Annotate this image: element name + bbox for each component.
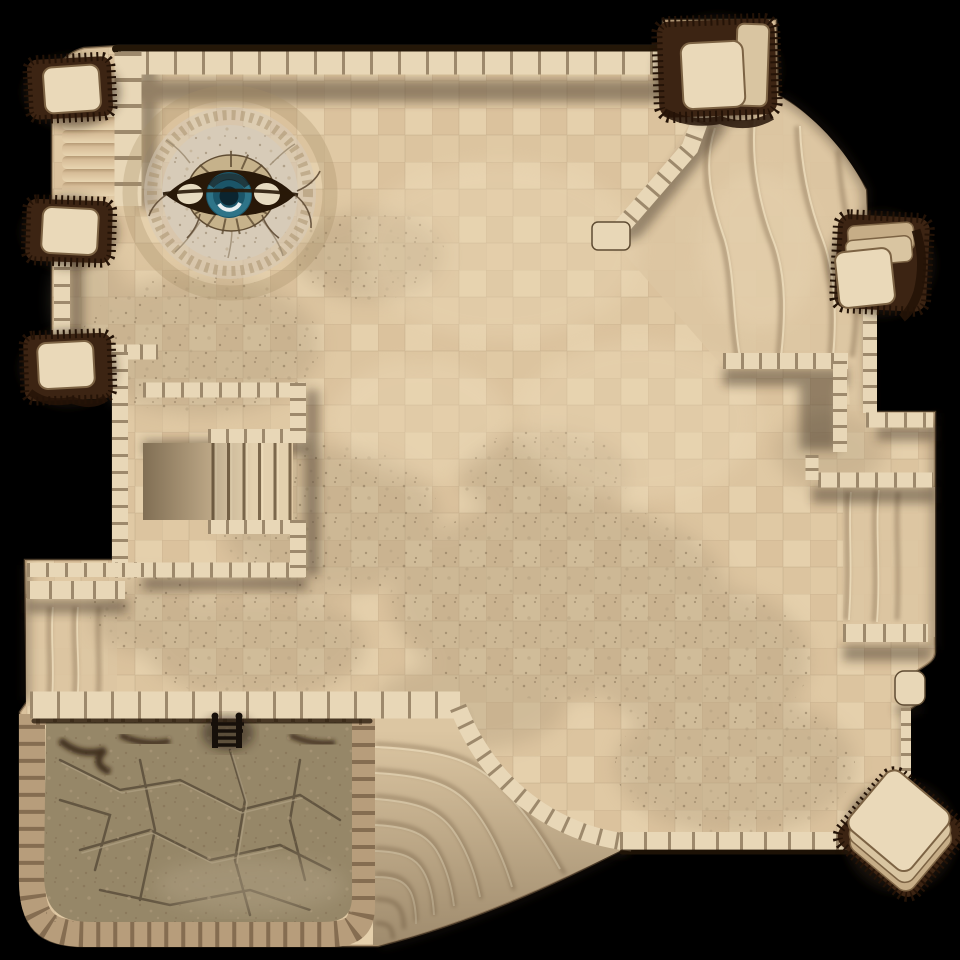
stair-tread <box>62 156 118 169</box>
battle-map <box>0 0 960 960</box>
stair-tread <box>62 182 118 196</box>
sand-alcove-east <box>843 487 935 637</box>
wall-end-cap <box>592 222 630 250</box>
pillar-west-upper <box>25 199 113 264</box>
pit <box>32 712 362 934</box>
pillar-northwest <box>26 56 113 120</box>
pillar-northeast <box>656 18 777 124</box>
boundary-block <box>895 671 925 705</box>
stair-tread <box>62 143 118 156</box>
pillar-east <box>834 214 931 318</box>
eye-dais <box>130 93 330 293</box>
stair-tread <box>62 130 118 143</box>
map-canvas <box>0 0 960 960</box>
inner-stair-alcove <box>143 443 293 520</box>
stair-tread <box>62 169 118 182</box>
pillar-west-lower <box>23 332 113 403</box>
